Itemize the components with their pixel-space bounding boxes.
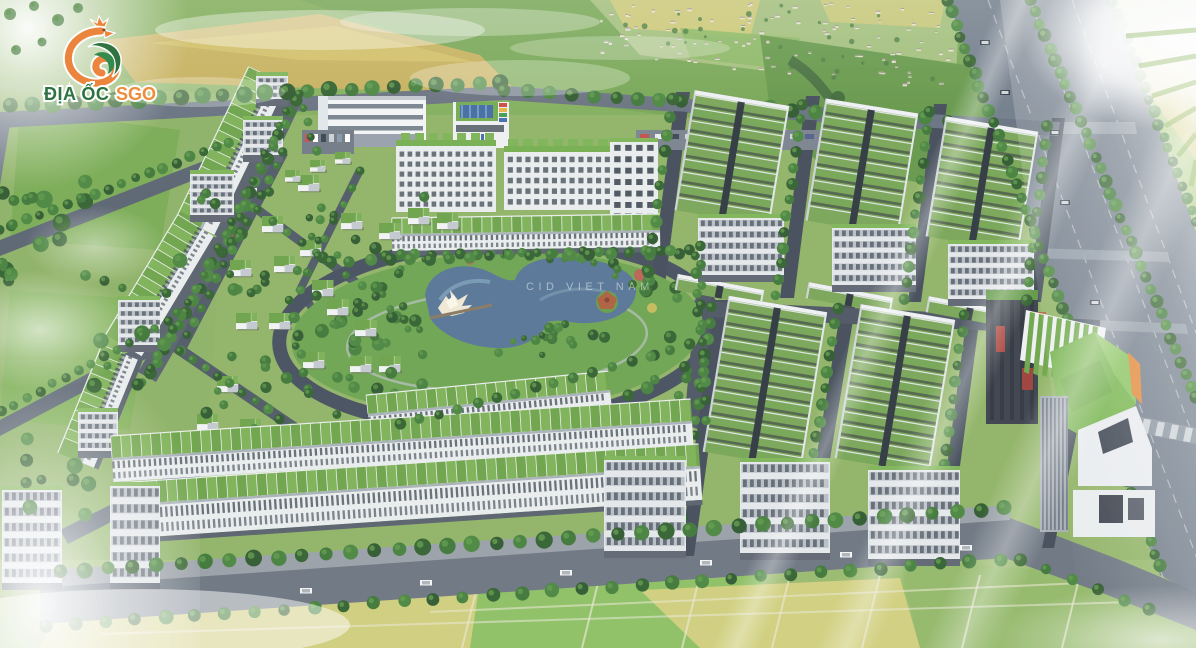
- svg-text:ĐỊA ỐC: ĐỊA ỐC: [44, 83, 109, 104]
- svg-text:CID VIET NAM: CID VIET NAM: [526, 281, 654, 293]
- svg-text:SGO: SGO: [116, 84, 156, 104]
